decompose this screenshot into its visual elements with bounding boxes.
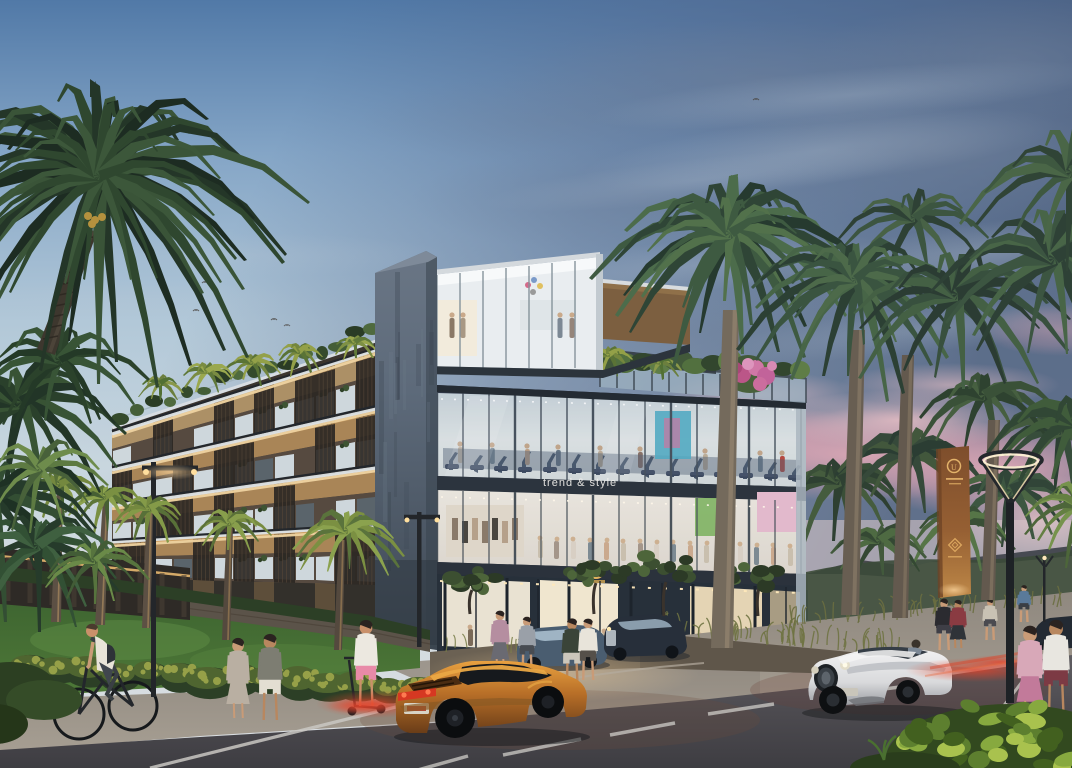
svg-text:U: U: [951, 463, 957, 472]
svg-text:trend & style: trend & style: [543, 477, 617, 489]
